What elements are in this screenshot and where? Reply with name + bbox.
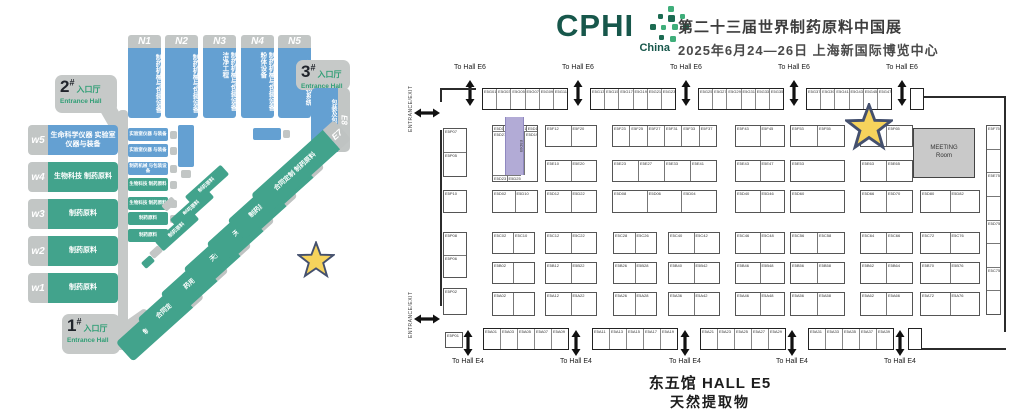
bottom-wall-strip-3: E5A21E5A23E5A25E5A27E5A29 — [700, 328, 786, 350]
meeting-room[interactable]: MEETINGRoom — [913, 128, 975, 178]
booth[interactable]: E5G27 — [712, 89, 726, 109]
booth[interactable]: E5F33 — [681, 126, 698, 146]
to-hall-e6-label-3: To Hall E6 — [670, 64, 702, 71]
booth[interactable]: E5C40 — [669, 233, 694, 253]
booth[interactable]: E5D82 — [950, 191, 980, 212]
booth-group: E5A62E5A66 — [860, 292, 913, 316]
booth[interactable]: E5C12 — [546, 233, 571, 253]
booth[interactable]: E5B70 — [921, 263, 950, 283]
booth[interactable] — [513, 293, 534, 315]
booth[interactable]: E5B76 — [950, 263, 980, 283]
booth[interactable]: E5A62 — [861, 293, 886, 315]
mid-hall-box-2[interactable]: 实验室仪器 与装备 — [128, 144, 168, 157]
booth-group: E5F53E5F55 — [790, 125, 845, 147]
booth[interactable]: E5A76 — [950, 293, 980, 315]
booth[interactable] — [987, 243, 1000, 267]
highlighted-booth-block[interactable]: E5D11E5D13E5D15E5D17E5D21E5D05E5D19E5D23… — [492, 125, 538, 182]
to-hall-e4-arrow-3 — [680, 330, 690, 356]
booth-group: E5A56E5A58 — [790, 292, 845, 316]
booth-group: E5C46E5C48 — [735, 232, 785, 254]
booth[interactable]: E5A35 — [842, 329, 859, 349]
entrance-hall-2[interactable]: 2#入口厅Entrance Hall — [55, 75, 117, 113]
booth-group: E5C64E5C66 — [860, 232, 913, 254]
booth[interactable]: E5A13 — [609, 329, 626, 349]
booth[interactable]: E5B58 — [817, 263, 844, 283]
booth[interactable]: E5G19 — [633, 89, 647, 109]
entrance-hall-3-cn: 入口厅 — [317, 70, 341, 79]
booth[interactable]: E5D06 — [647, 191, 682, 212]
booth[interactable]: E5D21 — [493, 131, 505, 175]
booth[interactable]: E5A12 — [546, 293, 571, 315]
booth-group: E5B26E5B28 — [613, 262, 657, 284]
n-annex-box — [253, 128, 281, 140]
booth-group: E5B02 — [492, 262, 535, 284]
hall-n4[interactable]: N4制药机械与包装设备 粉体设备 — [241, 35, 274, 118]
booth-group: E5C72E5C76 — [920, 232, 980, 254]
booth-group: E5B62E5B64 — [860, 262, 913, 284]
booth[interactable]: E5E47 — [760, 161, 785, 181]
entrance-hall-2-en: Entrance Hall — [60, 98, 112, 105]
mid-hall-chip-4 — [170, 181, 177, 189]
to-hall-e6-label-1: To Hall E6 — [454, 64, 486, 71]
booth[interactable]: E5B62 — [861, 263, 886, 283]
booth[interactable]: E5A02 — [493, 293, 513, 315]
booth[interactable]: E5A21 — [701, 329, 717, 349]
booth[interactable]: E5G01 — [483, 89, 496, 109]
mid-vertical-chip — [181, 170, 191, 178]
booth[interactable]: E5C72 — [921, 233, 950, 253]
booth[interactable]: E5C76 — [950, 233, 980, 253]
booth[interactable]: E5G39 — [820, 89, 834, 109]
hall-w3-label: 制药原料 — [48, 199, 118, 229]
to-hall-e4-label-3: To Hall E4 — [669, 358, 701, 365]
booth-group: E5E43E5E47 — [735, 160, 785, 182]
booth[interactable]: E5C22 — [571, 233, 597, 253]
hall-e5-floor-plan: 东五馆 HALL E5 天然提取物 To Hall E6To Hall E6To… — [400, 0, 1024, 411]
booth-group: E5A46E5A48 — [735, 292, 785, 316]
booth[interactable]: E5C28 — [614, 233, 635, 253]
right-wall — [1004, 96, 1006, 332]
booth[interactable]: E5F55 — [817, 126, 844, 146]
booth[interactable]: E5A46 — [736, 293, 760, 315]
booth[interactable]: E5D12 — [546, 191, 571, 212]
booth[interactable]: E5A27 — [751, 329, 768, 349]
entrance-hall-1-num: 1# — [67, 317, 81, 334]
booth[interactable]: E5G03 — [496, 89, 510, 109]
booth[interactable]: E5G15 — [604, 89, 618, 109]
booth[interactable]: E5B02 — [493, 263, 513, 283]
hall-n3[interactable]: N3制药机械与包装设备 洁净工程 — [203, 35, 236, 118]
booth[interactable]: E5A42 — [694, 293, 720, 315]
to-hall-e4-label-4: To Hall E4 — [776, 358, 808, 365]
top-wall-strip-2: E5G13E5G15E5G17E5G19E5G21E5G23 — [590, 88, 676, 110]
hall-w4-label: 生物科技 制药原料 — [48, 162, 118, 192]
booth[interactable]: E5G33 — [755, 89, 769, 109]
booth[interactable]: E5E10 — [546, 161, 571, 181]
booth-group: E5D12E5D22 — [545, 190, 597, 213]
booth[interactable]: E5A23 — [717, 329, 734, 349]
hall-n1-label: 制药机械与包装设备 — [128, 48, 161, 118]
booth[interactable]: E5D25 — [507, 175, 522, 181]
booth[interactable]: E5D10 — [515, 191, 538, 212]
entrance-hall-1[interactable]: 1#入口厅Entrance Hall — [62, 314, 120, 354]
entrance-exit-arrow-top — [414, 105, 440, 115]
cphi-hall-map-page: CPHI China 第二十三届世界制药原料中国展 2025年6月24—26日 … — [0, 0, 1024, 411]
booth[interactable]: E5B22 — [571, 263, 597, 283]
booth[interactable]: E5E63 — [861, 161, 886, 181]
booth[interactable]: E5B64 — [886, 263, 912, 283]
booth[interactable]: E5F12 — [546, 126, 571, 146]
booth[interactable]: E5G31 — [741, 89, 755, 109]
booth[interactable]: E5E41 — [690, 161, 716, 181]
booth[interactable]: E5D22 — [571, 191, 597, 212]
hall-n3-label: 制药机械与包装设备 洁净工程 — [203, 48, 236, 118]
booth[interactable]: E5P02 — [443, 288, 467, 315]
mid-hall-box-1[interactable]: 实验室仪器 与装备 — [128, 128, 168, 141]
hall-w1-tag: w1 — [28, 273, 48, 303]
booth[interactable]: E5C26 — [635, 233, 657, 253]
booth[interactable]: E5G17 — [618, 89, 632, 109]
booth[interactable]: E5C56 — [791, 233, 817, 253]
booth-group: E5E10E5E20 — [545, 160, 597, 182]
bottom-wall-strip-2: E5A11E5A13E5A15E5A17E5A19 — [592, 328, 678, 350]
booth-group: E5B12E5B22 — [545, 262, 597, 284]
hall-w5-tag: w5 — [28, 125, 48, 155]
entrance-exit-arrow-bottom — [414, 311, 440, 321]
booth-group: E5D66E5D70 — [860, 190, 913, 213]
booth[interactable]: E5B42 — [694, 263, 720, 283]
bottom-wall-strip-4: E5A31E5A33E5A35E5A37E5A39 — [808, 328, 894, 350]
booth[interactable]: E5A01 — [484, 329, 500, 349]
booth[interactable]: E5D80 — [921, 191, 950, 212]
booth[interactable]: E5D04 — [681, 191, 716, 212]
booth[interactable]: E5G35 — [769, 89, 783, 109]
booth[interactable]: E5F25 — [629, 126, 646, 146]
venue-overview-map: N1制药机械与包装设备N2制药机械与包装设备N3制药机械与包装设备 洁净工程N4… — [0, 0, 420, 411]
booth-group: E5D80E5D82 — [920, 190, 980, 213]
booth[interactable] — [987, 149, 1000, 173]
booth[interactable] — [513, 263, 534, 283]
booth[interactable]: E5B40 — [669, 263, 694, 283]
booth[interactable]: E5A66 — [886, 293, 912, 315]
mid-hall-chip-1 — [170, 131, 177, 139]
to-hall-e6-label-2: To Hall E6 — [562, 64, 594, 71]
right-booth-column: E5F75E5E75E5D75E5C75 — [986, 125, 1001, 315]
booth[interactable]: E5G25 — [699, 89, 712, 109]
booth[interactable]: E5E27 — [638, 161, 664, 181]
booth-group: E5C56E5C58 — [790, 232, 845, 254]
highlight-row-bottom: E5D23E5D25 — [493, 175, 537, 181]
top-wall-strip-3: E5G25E5G27E5G29E5G31E5G33E5G35 — [698, 88, 784, 110]
booth[interactable]: E5F20 — [571, 126, 597, 146]
booth[interactable]: E5B12 — [546, 263, 571, 283]
booth[interactable]: E5B28 — [635, 263, 657, 283]
booth[interactable]: E5A48 — [760, 293, 785, 315]
booth-group: E5A12E5A22 — [545, 292, 597, 316]
to-hall-e6-arrow-3 — [681, 80, 691, 106]
overview-star-marker — [297, 241, 335, 279]
booth-group: E5A26E5A28 — [613, 292, 657, 316]
booth[interactable]: E5A26 — [614, 293, 635, 315]
booth[interactable]: E5B46 — [736, 263, 760, 283]
to-hall-e6-arrow-5 — [897, 80, 907, 106]
booth-group: E5B46E5B48 — [735, 262, 785, 284]
meeting-room-label-2: Room — [936, 153, 952, 161]
booth[interactable]: E5A29 — [768, 329, 785, 349]
hall-w1-label: 制药原料 — [48, 273, 118, 303]
booth-group: E5C28E5C26 — [613, 232, 657, 254]
to-hall-e4-arrow-5 — [895, 330, 905, 356]
entrance-hall-2-num: 2# — [60, 78, 74, 95]
top-wall-right — [924, 96, 1006, 98]
booth[interactable]: E5A56 — [791, 293, 817, 315]
booth[interactable]: E5C02 — [493, 233, 513, 253]
booth[interactable]: E5F43 — [736, 126, 760, 146]
corridor-spine — [118, 110, 128, 350]
booth[interactable]: E5A15 — [626, 329, 643, 349]
booth[interactable]: E5A72 — [921, 293, 950, 315]
booth-group: E5A02 — [492, 292, 535, 316]
to-hall-e4-label-2: To Hall E4 — [560, 358, 592, 365]
booth[interactable]: E5D19 — [524, 131, 537, 175]
hall-w2-label: 制药原料 — [48, 236, 118, 266]
to-hall-e6-arrow-4 — [789, 80, 799, 106]
booth[interactable]: E5E65 — [886, 161, 912, 181]
booth[interactable]: E5A31 — [809, 329, 825, 349]
booth-group: E5F23E5F25E5F27E5F31E5F33E5F37 — [612, 125, 717, 147]
booth[interactable]: E5P05 — [444, 152, 466, 176]
booth-group: E5B70E5B76 — [920, 262, 980, 284]
booth[interactable]: E5C58 — [817, 233, 844, 253]
booth[interactable]: E5D60 — [791, 191, 844, 212]
hall-title: 东五馆 HALL E5 — [649, 372, 771, 393]
booth[interactable]: E5G21 — [647, 89, 661, 109]
booth[interactable]: E5G23 — [661, 89, 675, 109]
booth[interactable]: E5G37 — [807, 89, 820, 109]
booth[interactable]: E5A03 — [500, 329, 517, 349]
booth[interactable]: E5E20 — [571, 161, 597, 181]
booth[interactable]: E5A33 — [825, 329, 842, 349]
booth[interactable]: E5D23 — [493, 175, 507, 181]
booth[interactable]: E5A09 — [551, 329, 568, 349]
booth[interactable]: E5A22 — [571, 293, 597, 315]
to-hall-e4-label-1: To Hall E4 — [452, 358, 484, 365]
entrance-hall-1-en: Entrance Hall — [67, 337, 115, 344]
booth-group: E5D40E5D46 — [735, 190, 785, 213]
hall-w1[interactable]: w1制药原料 — [28, 273, 118, 303]
booth[interactable]: E5A25 — [734, 329, 751, 349]
booth-group: E5D02E5D10 — [492, 190, 538, 213]
booth[interactable]: E5A17 — [643, 329, 660, 349]
entrance-hall-2-cn: 入口厅 — [76, 85, 100, 94]
mid-hall-chip-3 — [170, 165, 177, 173]
hall-n5-tag: N5 — [278, 35, 311, 48]
booth[interactable]: E5D40 — [736, 191, 760, 212]
booth[interactable]: E5A58 — [817, 293, 844, 315]
booth[interactable]: E5D46 — [760, 191, 785, 212]
highlighted-booth[interactable]: E5D05 — [505, 117, 524, 175]
hall-w2[interactable]: w2制药原料 — [28, 236, 118, 266]
booth-group: E5C12E5C22 — [545, 232, 597, 254]
booth[interactable]: E5C42 — [694, 233, 720, 253]
booth-group: E5A36E5A42 — [668, 292, 720, 316]
booth[interactable]: E5F53 — [791, 126, 817, 146]
booth[interactable]: E5G05 — [510, 89, 524, 109]
booth[interactable]: E5C66 — [886, 233, 912, 253]
hall-w4-tag: w4 — [28, 162, 48, 192]
booth[interactable]: E5B56 — [791, 263, 817, 283]
hall-n2-label: 制药机械与包装设备 — [165, 48, 198, 118]
booth[interactable]: E5F27 — [647, 126, 664, 146]
mid-hall-box-3[interactable]: 制药机械 与包装设备 — [128, 162, 168, 175]
booth-group: E5E63E5E65 — [860, 160, 913, 182]
booth-group: E5F43E5F45 — [735, 125, 785, 147]
bottom-wall-right — [922, 348, 1006, 350]
booth-group: E5P08E5P06 — [443, 232, 467, 278]
to-hall-e6-arrow-1 — [465, 80, 475, 106]
booth[interactable]: E5D66 — [861, 191, 886, 212]
booth[interactable]: E5C75 — [987, 267, 1000, 291]
top-wall-left-corner — [440, 88, 476, 90]
booth[interactable]: E5F37 — [699, 126, 716, 146]
booth[interactable]: E5P08 — [444, 233, 466, 255]
booth-group: E5B56E5B58 — [790, 262, 845, 284]
booth[interactable]: E5D08 — [613, 191, 647, 212]
floor-plan-star-marker — [845, 103, 893, 151]
to-hall-e4-arrow-2 — [571, 330, 581, 356]
booth[interactable]: E5A19 — [660, 329, 677, 349]
booth[interactable]: E5C48 — [760, 233, 785, 253]
meeting-room-label-1: MEETING — [930, 145, 957, 153]
hall-n2[interactable]: N2制药机械与包装设备 — [165, 35, 198, 118]
to-hall-e6-arrow-2 — [573, 80, 583, 106]
booth[interactable]: E5E53 — [791, 161, 844, 181]
entrance-hall-1-cn: 入口厅 — [83, 324, 107, 333]
booth[interactable]: E5D75 — [987, 220, 1000, 244]
booth[interactable]: E5C64 — [861, 233, 886, 253]
entrance-hall-3-num: 3# — [301, 63, 315, 80]
entrance-hall-3[interactable]: 3#入口厅Entrance Hall — [296, 60, 350, 90]
mid-hall-box-6[interactable]: 制药原料 — [128, 212, 168, 225]
mid-hall-box-4[interactable]: 生物科技 制药原料 — [128, 178, 168, 191]
booth[interactable]: E5A11 — [593, 329, 609, 349]
booth[interactable]: E5C46 — [736, 233, 760, 253]
hall-w5-label: 生命科学仪器 实验室仪器与装备 — [48, 125, 118, 155]
booth[interactable]: E5D02 — [493, 191, 515, 212]
hall-w3[interactable]: w3制药原料 — [28, 199, 118, 229]
booth[interactable]: E5F31 — [664, 126, 681, 146]
booth[interactable]: E5A07 — [534, 329, 551, 349]
bottom-wall-endcap — [908, 328, 922, 350]
booth-group: E5C40E5C42 — [668, 232, 720, 254]
booth[interactable]: E5F23 — [613, 126, 629, 146]
booth[interactable]: E5P10 — [443, 190, 467, 213]
highlight-row-mid: E5D21E5D05E5D19 — [493, 131, 537, 175]
booth-group: E5E53 — [790, 160, 845, 182]
to-hall-e6-label-4: To Hall E6 — [778, 64, 810, 71]
hall-w3-tag: w3 — [28, 199, 48, 229]
booth[interactable]: E5A37 — [859, 329, 876, 349]
hall-w4[interactable]: w4生物科技 制药原料 — [28, 162, 118, 192]
booth[interactable] — [987, 290, 1000, 314]
hall-n1-tag: N1 — [128, 35, 161, 48]
to-hall-e4-label-5: To Hall E4 — [884, 358, 916, 365]
hall-n1[interactable]: N1制药机械与包装设备 — [128, 35, 161, 118]
booth[interactable]: E5G09 — [539, 89, 553, 109]
booth-group: E5P07E5P05 — [443, 128, 467, 177]
booth[interactable]: E5E33 — [664, 161, 690, 181]
booth[interactable]: E5P07 — [444, 129, 466, 152]
left-wall — [440, 130, 442, 306]
booth-group: E5F12E5F20 — [545, 125, 597, 147]
booth-group: E5D08E5D06E5D04 — [612, 190, 717, 213]
booth[interactable]: E5A39 — [876, 329, 893, 349]
booth-group: E5D60 — [790, 190, 845, 213]
booth[interactable]: E5P01 — [445, 332, 463, 348]
booth[interactable]: E5P06 — [444, 255, 466, 278]
booth[interactable]: E5F75 — [987, 126, 1000, 149]
booth-group: E5C02E5C10 — [492, 232, 535, 254]
booth-group: E5E23E5E27E5E33E5E41 — [612, 160, 717, 182]
mid-hall-chip-2 — [170, 147, 177, 155]
booth[interactable]: E5B26 — [614, 263, 635, 283]
booth[interactable]: E5G07 — [525, 89, 539, 109]
top-wall-strip-1: E5G01E5G03E5G05E5G07E5G09E5G11 — [482, 88, 568, 110]
booth[interactable] — [987, 196, 1000, 220]
booth[interactable]: E5E43 — [736, 161, 760, 181]
top-wall-endcap — [910, 88, 924, 110]
booth[interactable]: E5G13 — [591, 89, 604, 109]
hall-n2-tag: N2 — [165, 35, 198, 48]
booth[interactable]: E5G29 — [726, 89, 740, 109]
hall-subtitle: 天然提取物 — [670, 392, 750, 411]
hall-e7-label: 合同定制 制药原料 — [251, 130, 340, 214]
booth[interactable]: E5B48 — [760, 263, 785, 283]
booth-group: E5A72E5A76 — [920, 292, 980, 316]
booth[interactable]: E5A36 — [669, 293, 694, 315]
booth[interactable]: E5E23 — [613, 161, 638, 181]
to-hall-e4-arrow-4 — [787, 330, 797, 356]
booth[interactable]: E5G11 — [553, 89, 567, 109]
hall-n3-tag: N3 — [203, 35, 236, 48]
left-wall-top — [440, 88, 442, 102]
booth[interactable]: E5D70 — [886, 191, 912, 212]
hall-n4-tag: N4 — [241, 35, 274, 48]
booth-group: E5B40E5B42 — [668, 262, 720, 284]
booth[interactable]: E5E75 — [987, 172, 1000, 196]
to-hall-e4-arrow-1 — [463, 330, 473, 356]
bottom-wall-strip-1: E5A01E5A03E5A05E5A07E5A09 — [483, 328, 569, 350]
n-annex-chip — [283, 130, 290, 138]
booth[interactable]: E5A28 — [635, 293, 657, 315]
booth[interactable]: E5F45 — [760, 126, 785, 146]
hall-n4-label: 制药机械与包装设备 粉体设备 — [241, 48, 274, 118]
booth[interactable]: E5C10 — [513, 233, 534, 253]
to-hall-e6-label-5: To Hall E6 — [886, 64, 918, 71]
booth[interactable]: E5A05 — [517, 329, 534, 349]
hall-w2-tag: w2 — [28, 236, 48, 266]
mid-vertical-box — [178, 125, 194, 167]
hall-w5[interactable]: w5生命科学仪器 实验室仪器与装备 — [28, 125, 118, 155]
